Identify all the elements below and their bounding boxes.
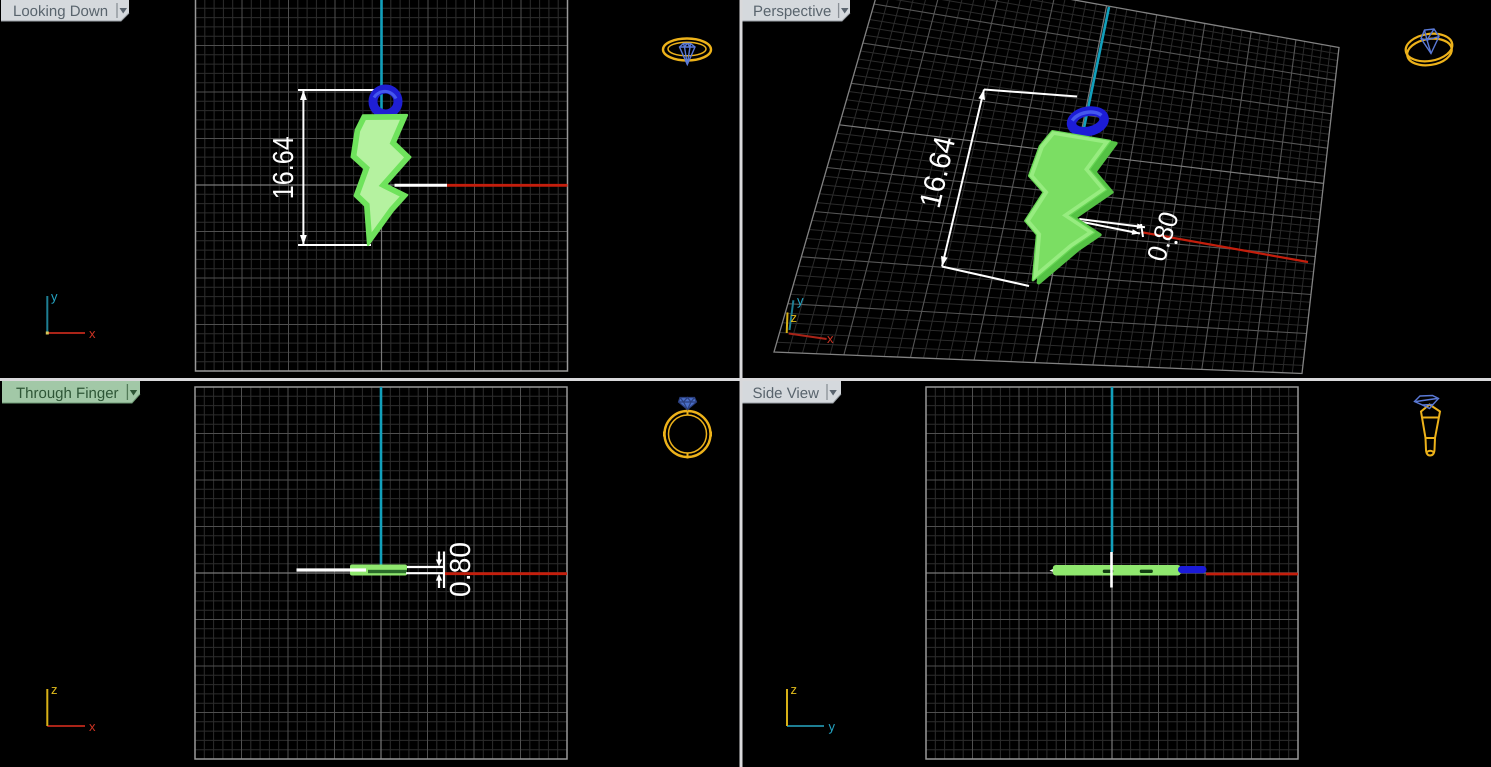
svg-text:z: z [791,310,798,325]
svg-text:Through Finger: Through Finger [16,385,119,402]
svg-text:y: y [797,293,804,308]
svg-text:Side View: Side View [753,385,820,402]
svg-text:x: x [89,719,96,734]
svg-text:y: y [829,719,836,734]
svg-text:Perspective: Perspective [753,3,831,20]
svg-text:16.64: 16.64 [268,136,300,199]
svg-text:z: z [51,682,58,697]
svg-text:y: y [51,289,58,304]
svg-text:Looking Down: Looking Down [13,3,108,20]
svg-text:0.80: 0.80 [445,542,477,597]
svg-text:x: x [827,331,834,346]
svg-text:x: x [89,326,96,341]
svg-text:z: z [791,682,798,697]
